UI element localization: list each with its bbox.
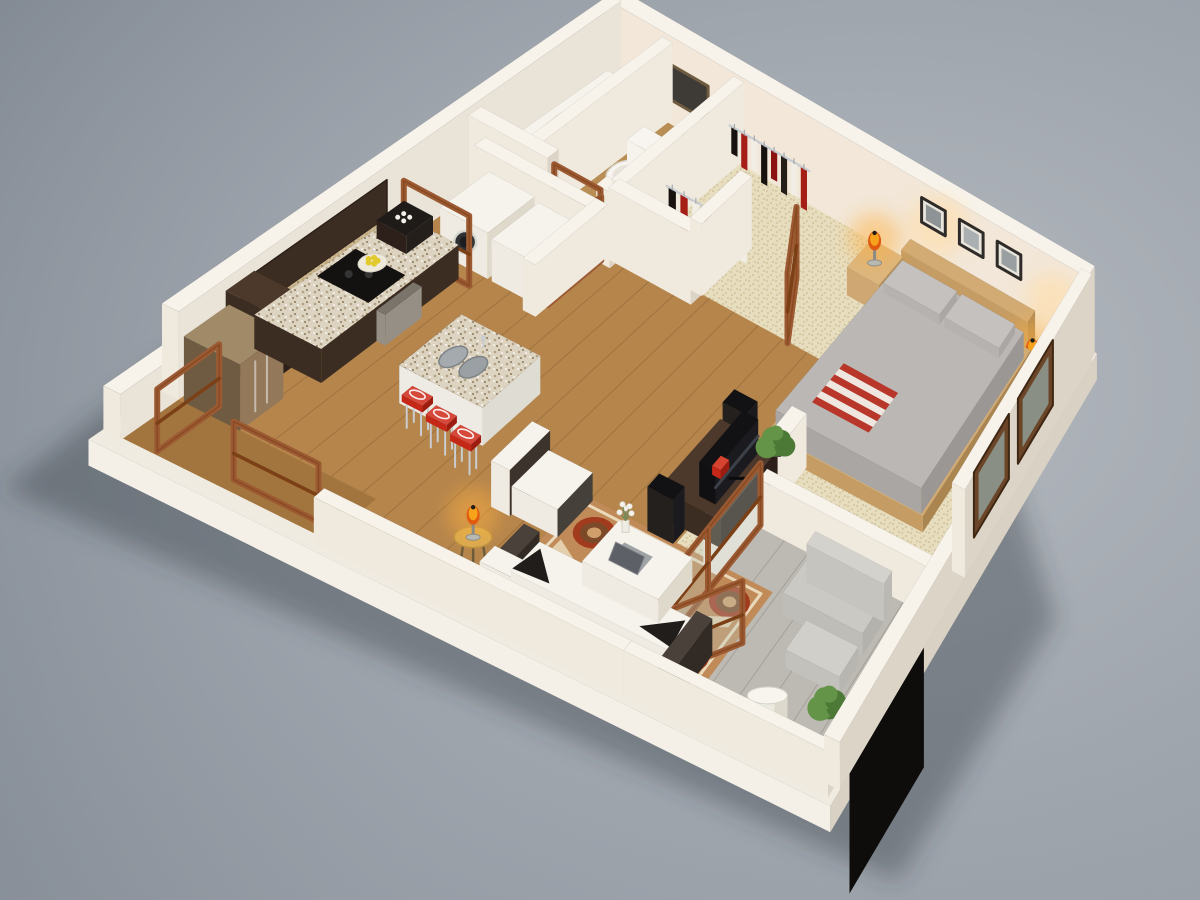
speaker-front [647,474,684,544]
apartment-floorplan-render [0,0,1200,900]
studio-backdrop [0,0,1200,900]
